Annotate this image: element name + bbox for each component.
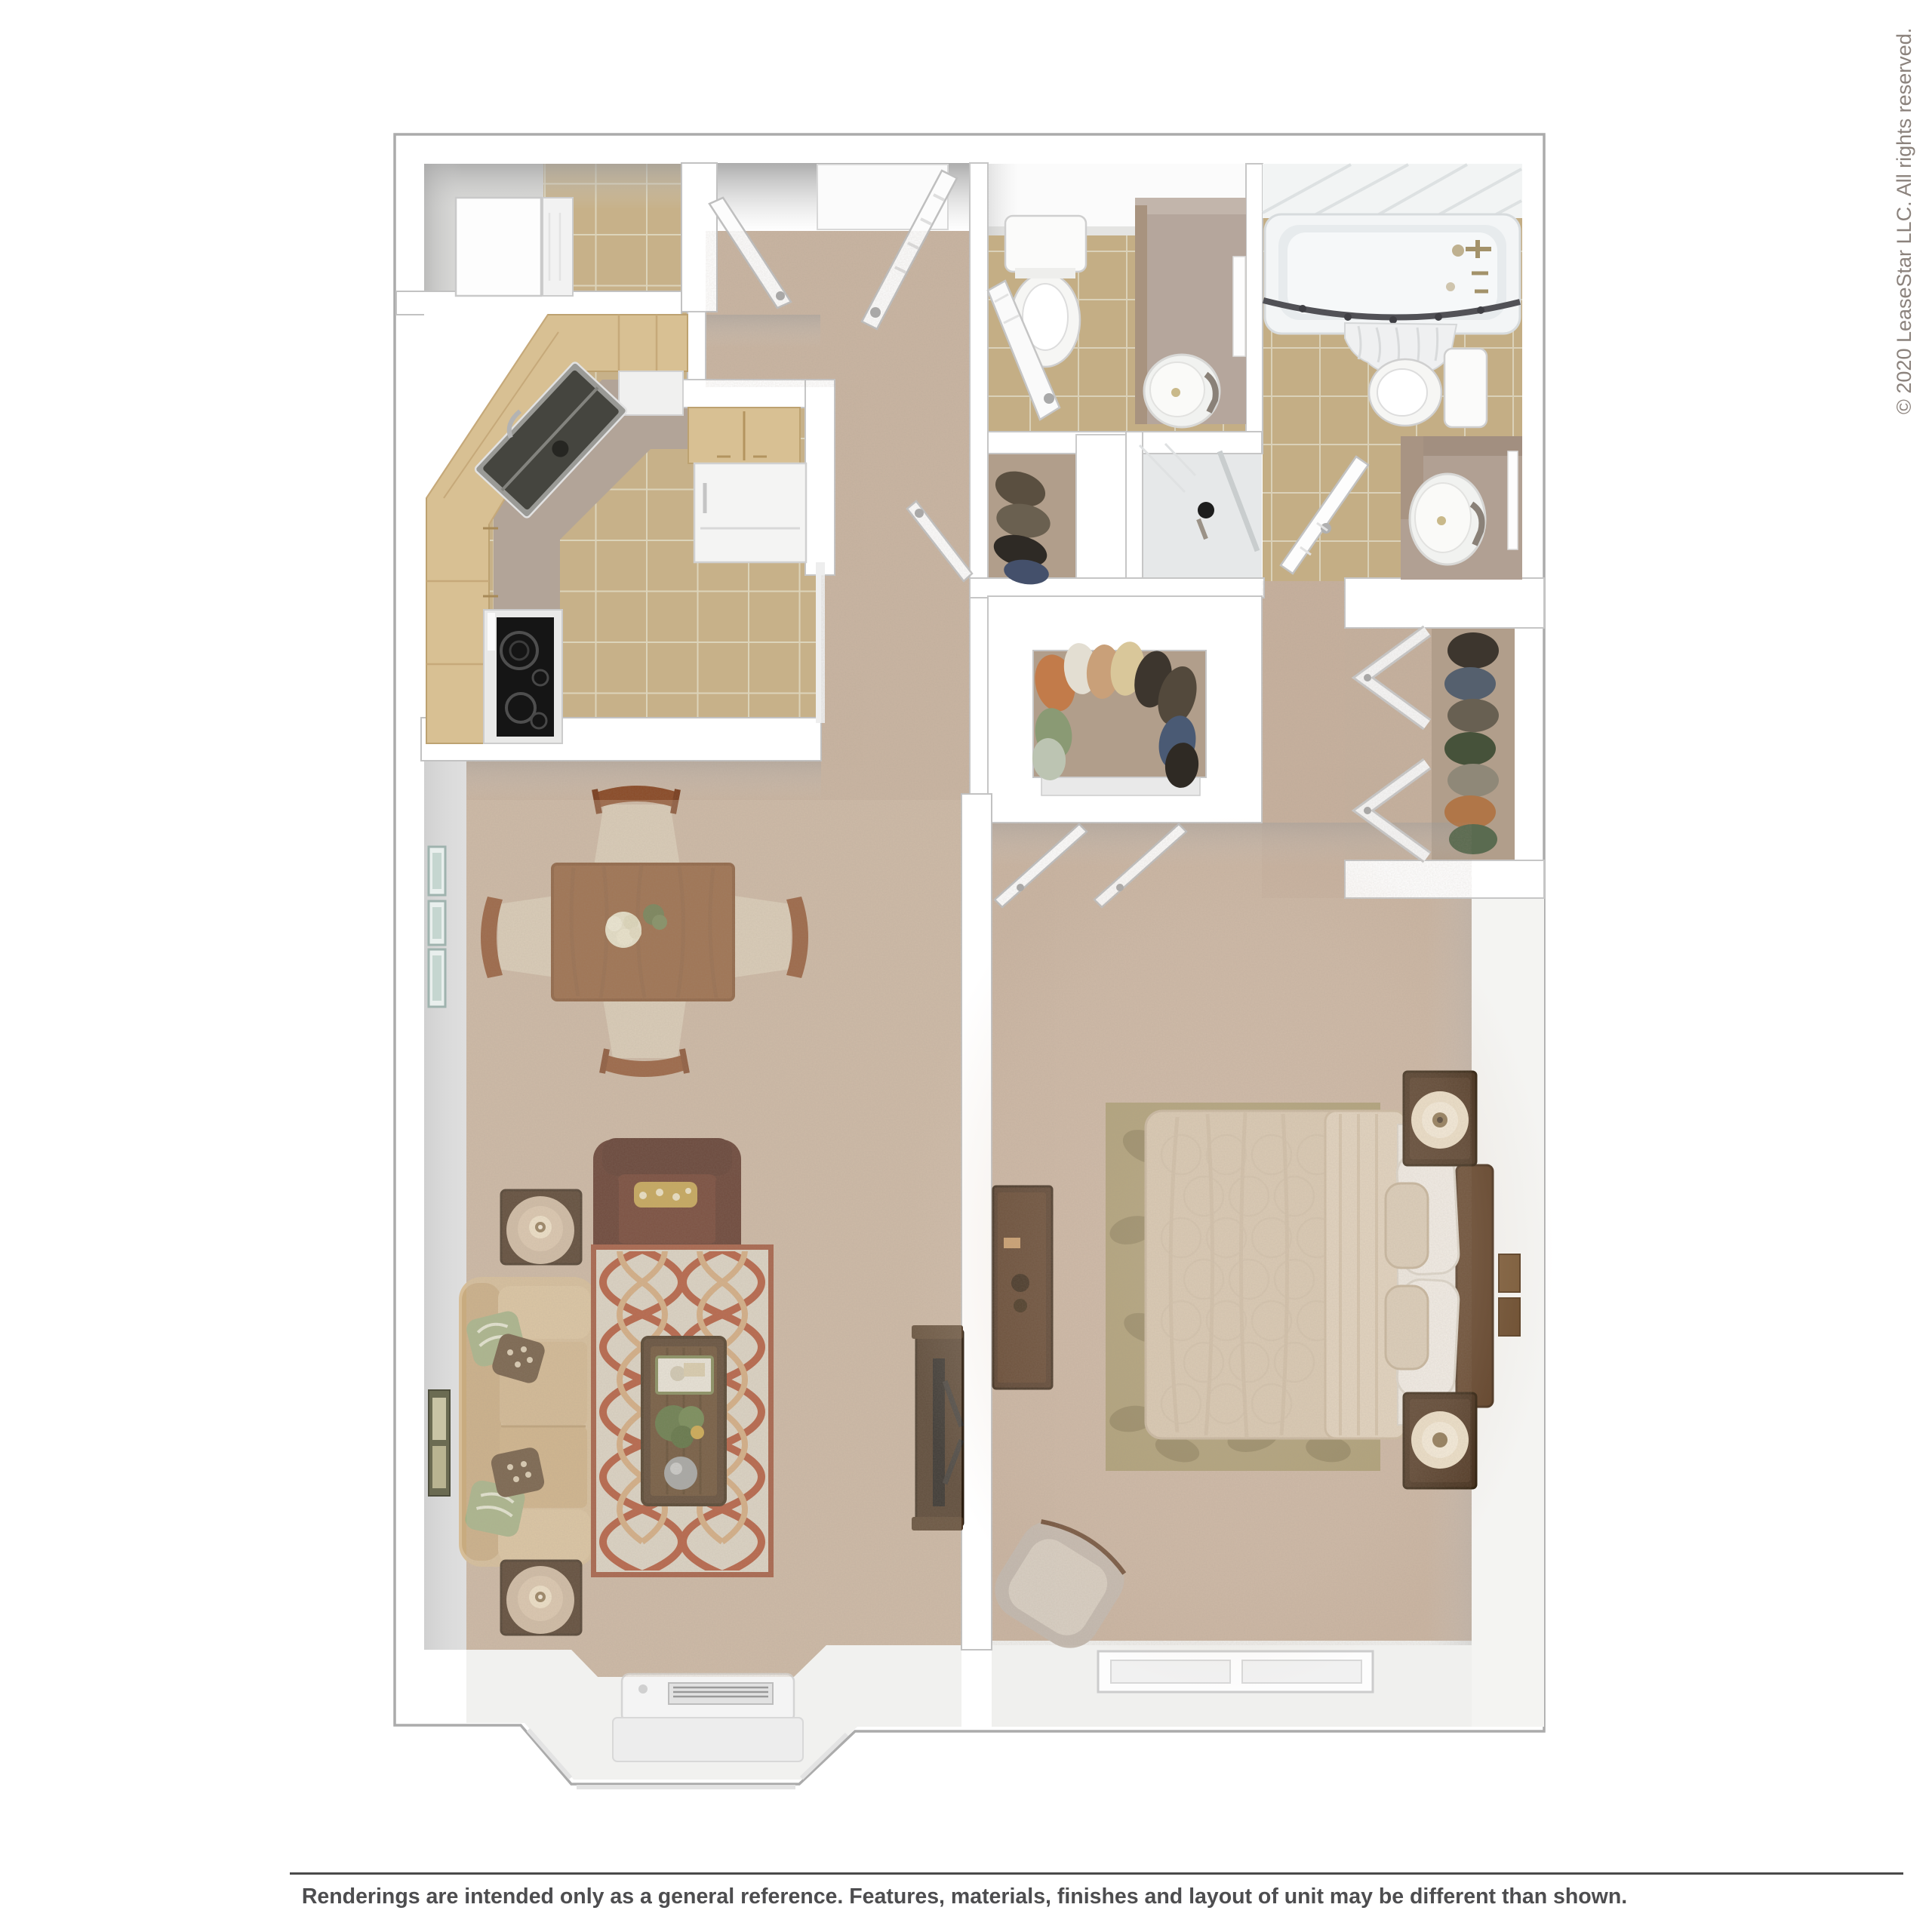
svg-text:© 2020 LeaseStar LLC. All righ: © 2020 LeaseStar LLC. All rights reserve… xyxy=(1893,28,1915,414)
svg-text:Renderings are intended only a: Renderings are intended only as a genera… xyxy=(302,1884,1627,1909)
